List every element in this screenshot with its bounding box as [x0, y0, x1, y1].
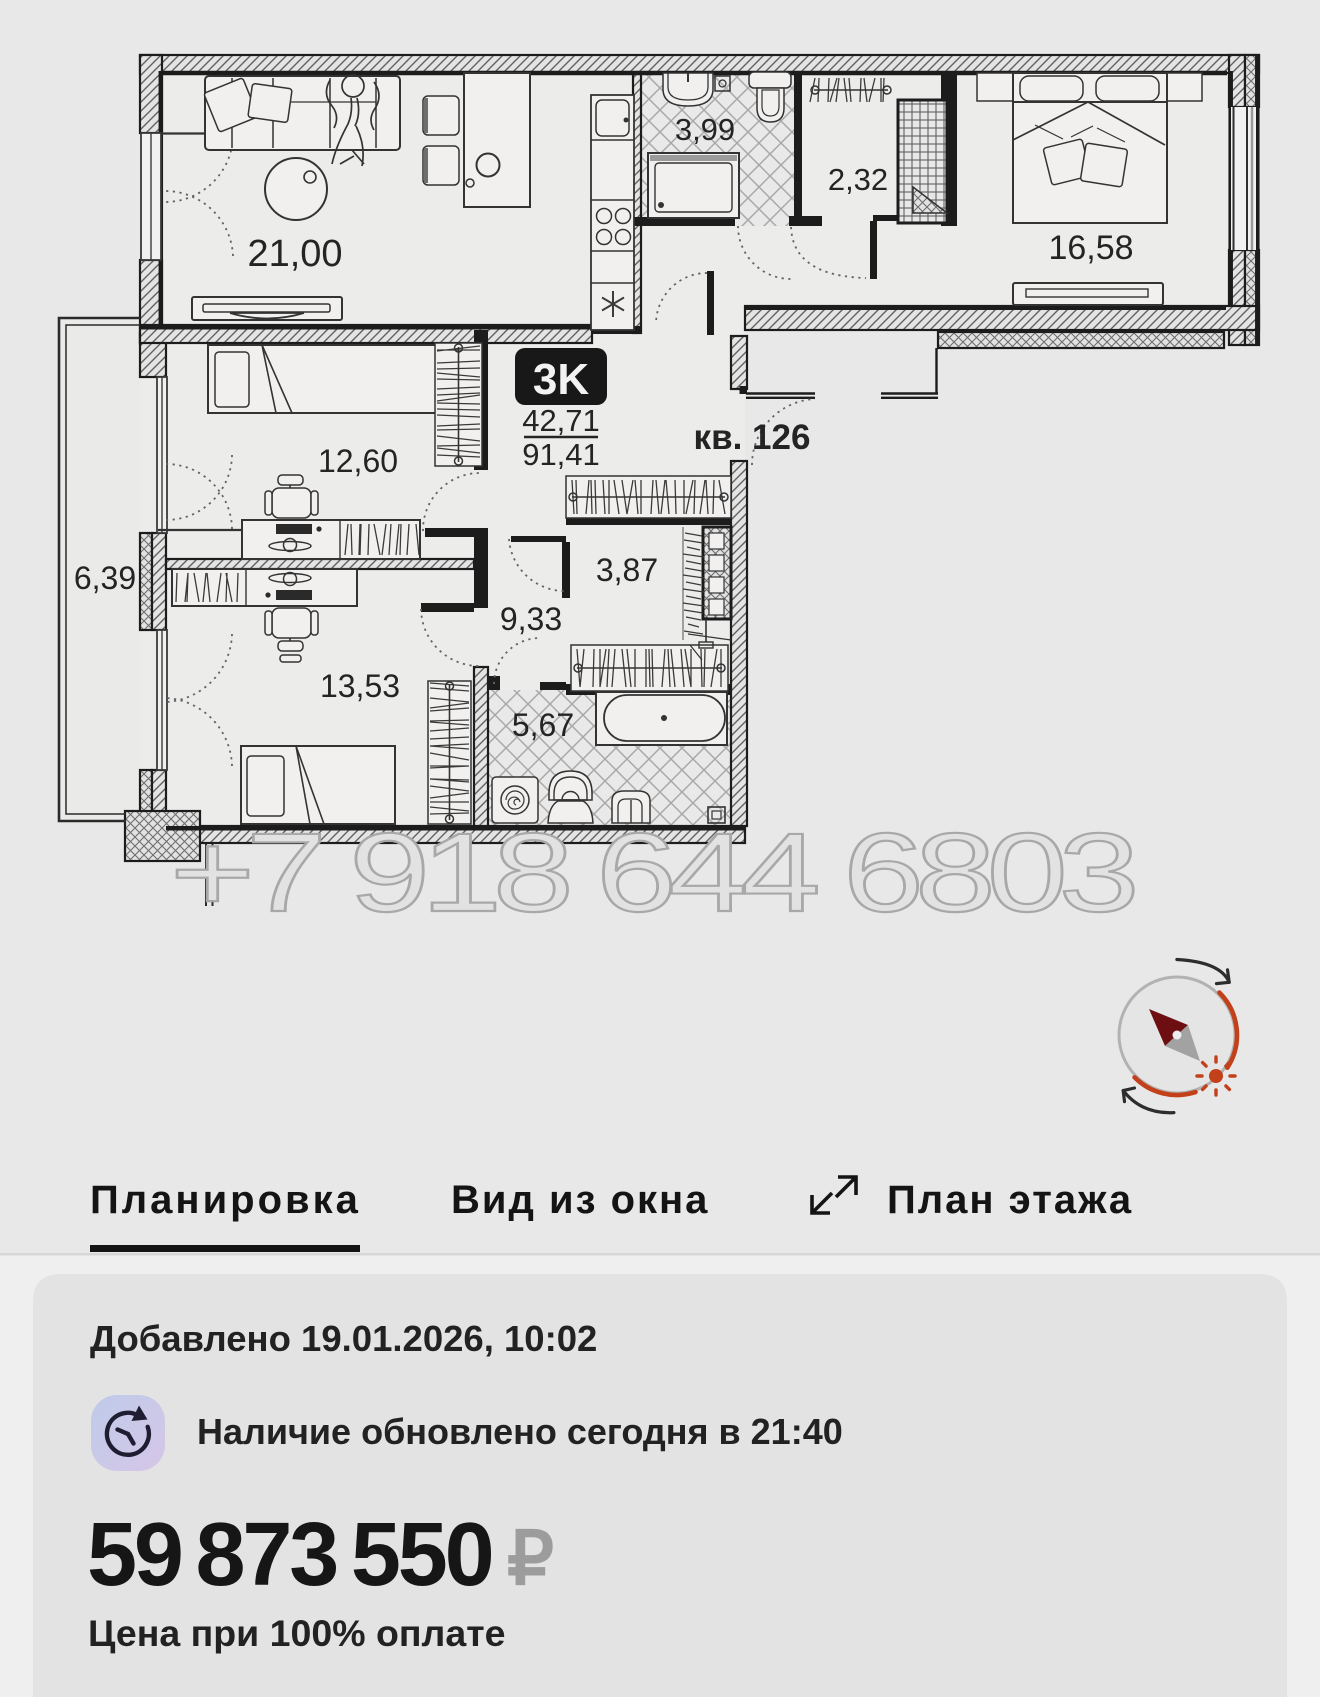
svg-text:5,67: 5,67: [512, 707, 574, 743]
svg-text:Вид из окна: Вид из окна: [451, 1178, 709, 1222]
svg-text:21,00: 21,00: [247, 233, 342, 275]
svg-text:Планировка: Планировка: [90, 1178, 361, 1222]
svg-text:42,71: 42,71: [522, 403, 600, 438]
svg-text:Цена при 100% оплате: Цена при 100% оплате: [88, 1612, 505, 1654]
svg-text:12,60: 12,60: [318, 443, 398, 479]
svg-text:16,58: 16,58: [1048, 229, 1133, 267]
svg-text:3,99: 3,99: [675, 112, 735, 147]
svg-text:₽: ₽: [507, 1517, 554, 1600]
svg-text:+7 918 644 6803: +7 918 644 6803: [170, 809, 1134, 935]
svg-text:Наличие обновлено сегодня в 21: Наличие обновлено сегодня в 21:40: [197, 1411, 843, 1452]
svg-text:91,41: 91,41: [522, 437, 600, 472]
svg-text:59 873 550: 59 873 550: [87, 1505, 492, 1605]
svg-text:13,53: 13,53: [320, 668, 400, 704]
svg-text:План этажа: План этажа: [887, 1178, 1133, 1222]
svg-text:6,39: 6,39: [74, 560, 136, 596]
svg-text:9,33: 9,33: [500, 601, 562, 637]
svg-text:Добавлено 19.01.2026, 10:02: Добавлено 19.01.2026, 10:02: [90, 1318, 597, 1359]
svg-text:2,32: 2,32: [828, 162, 888, 197]
svg-text:кв. 126: кв. 126: [694, 418, 811, 457]
svg-text:3,87: 3,87: [596, 552, 658, 588]
svg-text:3K: 3K: [533, 355, 589, 404]
